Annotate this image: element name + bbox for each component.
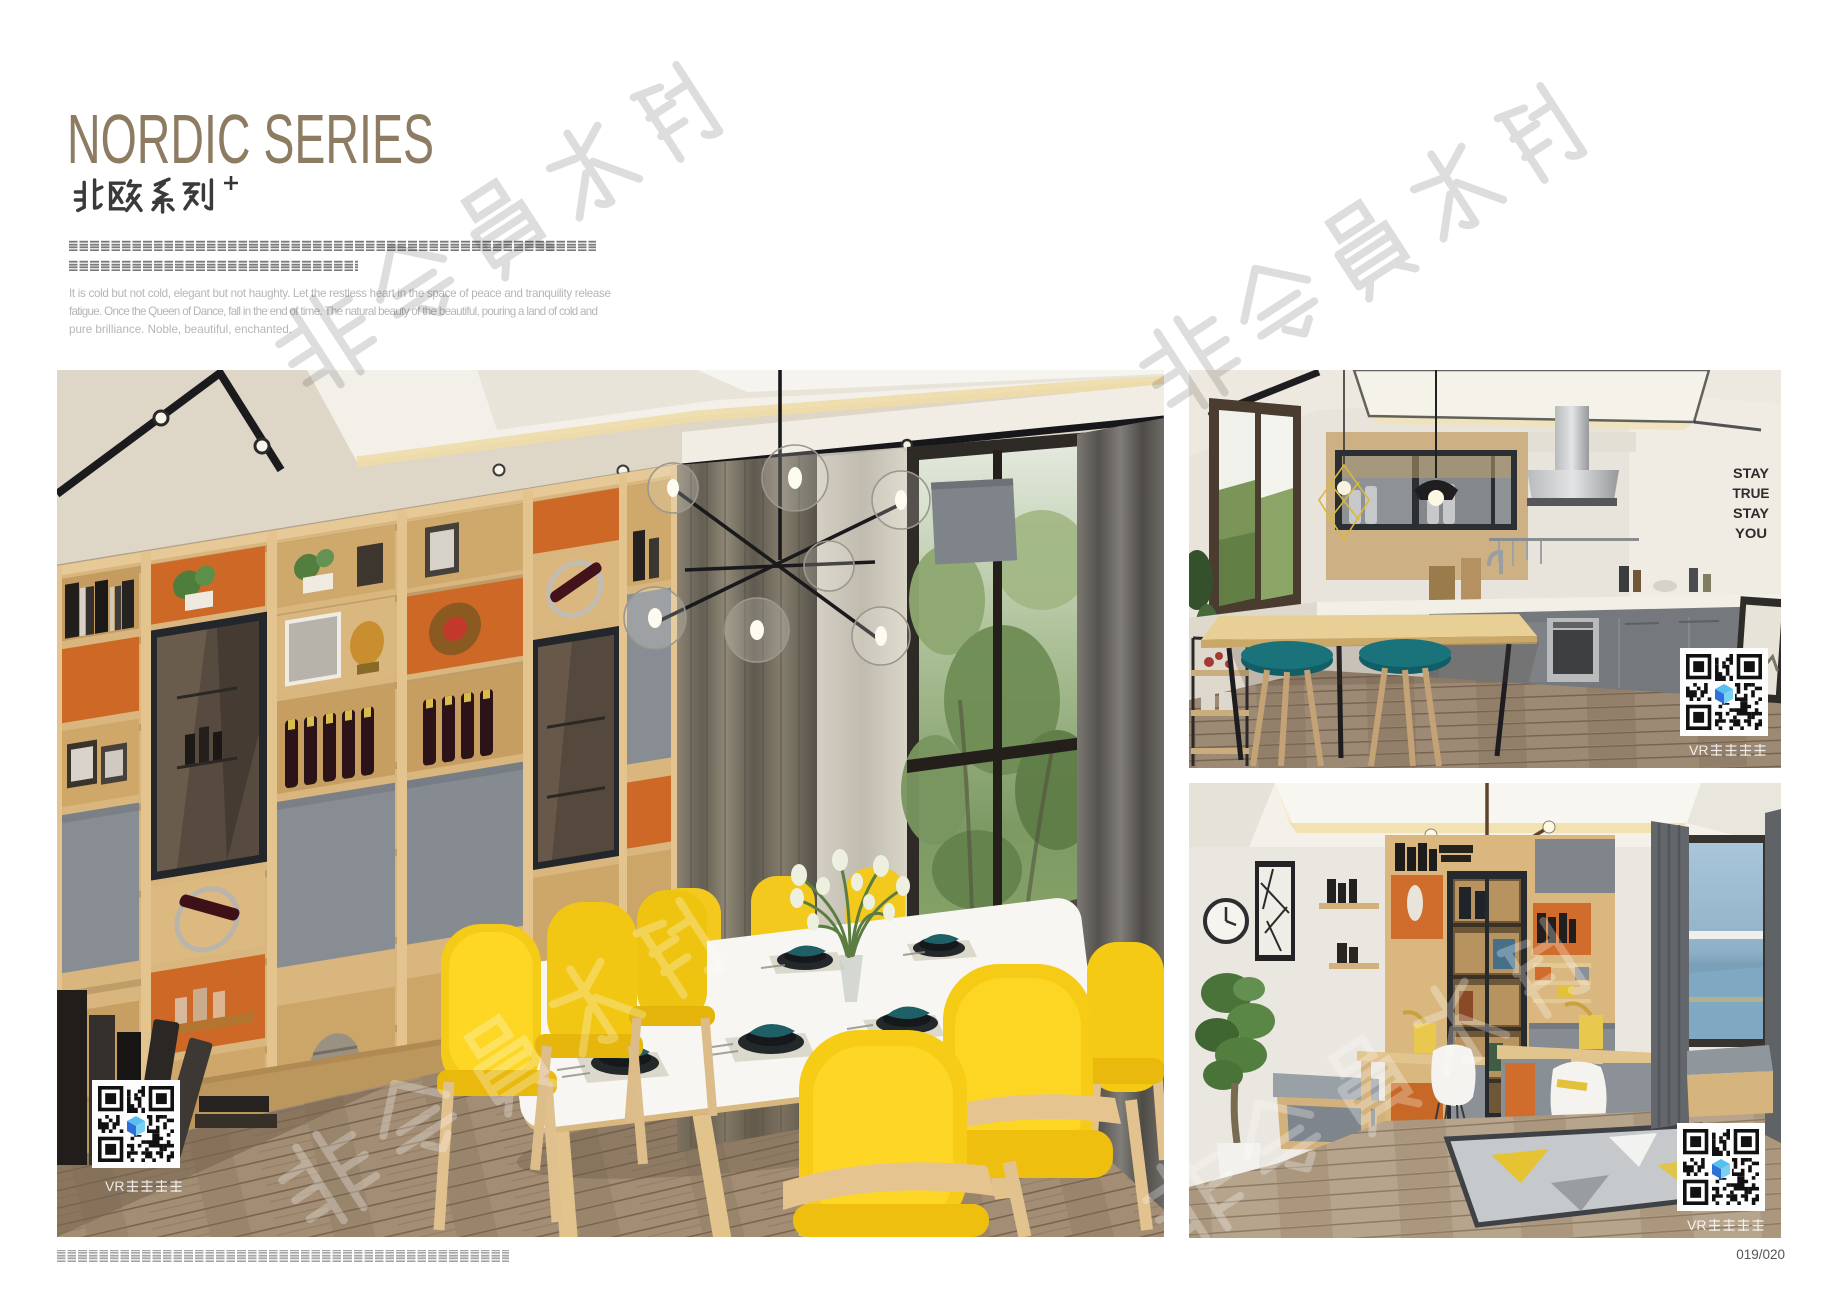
svg-text:STAY: STAY xyxy=(1733,506,1769,521)
svg-text:TRUE: TRUE xyxy=(1733,486,1770,501)
svg-text:NORDIC SERIES: NORDIC SERIES xyxy=(67,100,434,175)
svg-text:pure brilliance. Noble, beauti: pure brilliance. Noble, beautiful, encha… xyxy=(69,323,292,336)
svg-text:STAY: STAY xyxy=(1733,466,1769,481)
svg-text:YOU: YOU xyxy=(1735,526,1767,541)
